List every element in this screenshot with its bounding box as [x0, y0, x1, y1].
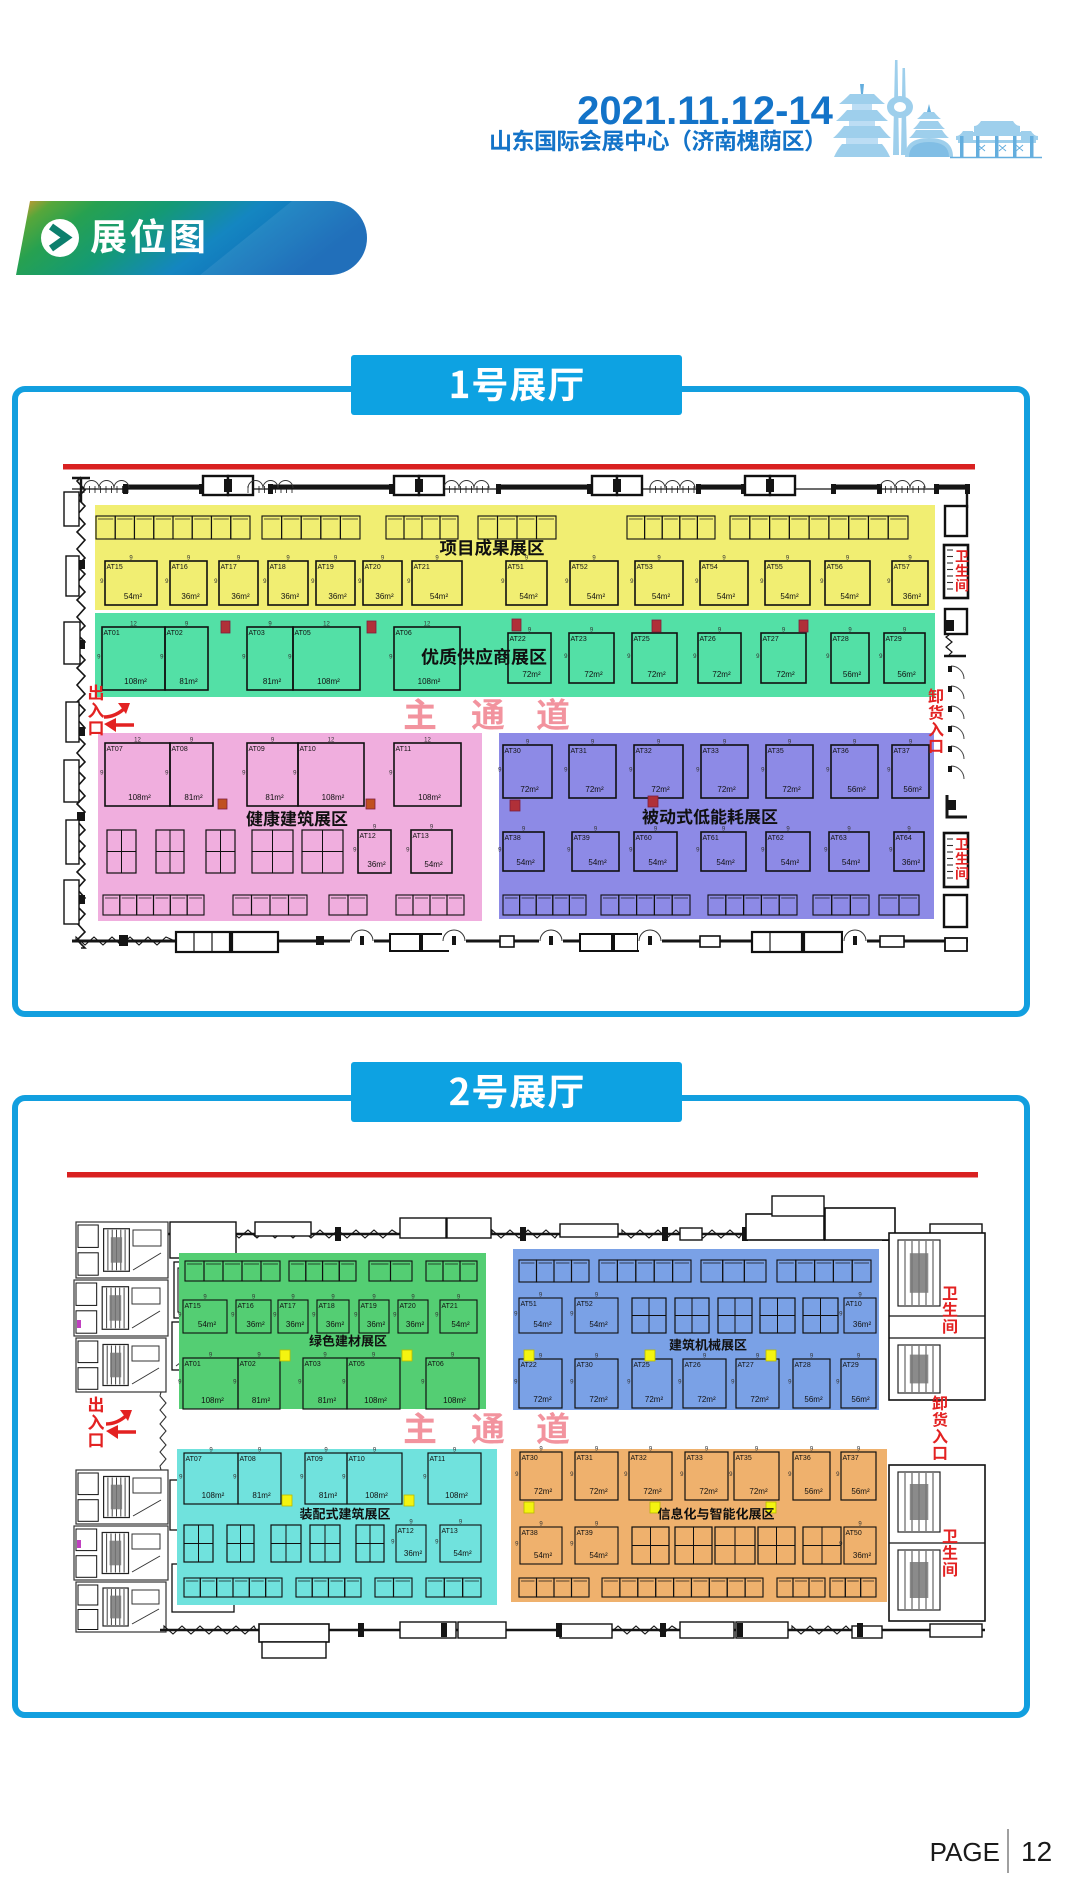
svg-text:54m²: 54m² [533, 1320, 552, 1329]
svg-text:AT29: AT29 [886, 636, 902, 643]
svg-text:54m²: 54m² [781, 858, 800, 867]
svg-text:108m²: 108m² [128, 793, 151, 802]
svg-text:AT11: AT11 [430, 1456, 446, 1463]
svg-text:AT19: AT19 [318, 564, 334, 571]
svg-text:AT36: AT36 [795, 1455, 811, 1462]
svg-text:72m²: 72m² [749, 1487, 768, 1496]
svg-text:72m²: 72m² [520, 785, 539, 794]
svg-text:AT62: AT62 [768, 835, 784, 842]
svg-text:AT25: AT25 [634, 1362, 650, 1369]
svg-text:54m²: 54m² [589, 1551, 608, 1560]
svg-text:AT08: AT08 [172, 746, 188, 753]
svg-text:AT13: AT13 [413, 833, 429, 840]
svg-text:AT35: AT35 [736, 1455, 752, 1462]
svg-text:72m²: 72m² [782, 785, 801, 794]
svg-text:36m²: 36m² [367, 1320, 386, 1329]
svg-text:AT05: AT05 [295, 630, 311, 637]
svg-text:108m²: 108m² [322, 793, 345, 802]
svg-text:AT05: AT05 [349, 1361, 365, 1368]
svg-text:36m²: 36m² [902, 858, 921, 867]
svg-text:AT23: AT23 [571, 636, 587, 643]
svg-text:54m²: 54m² [842, 858, 861, 867]
svg-text:56m²: 56m² [897, 670, 916, 679]
svg-text:AT60: AT60 [636, 835, 652, 842]
svg-text:AT02: AT02 [240, 1361, 256, 1368]
svg-text:AT57: AT57 [894, 564, 910, 571]
svg-text:PAGE: PAGE [930, 1837, 1000, 1867]
svg-text:AT17: AT17 [221, 564, 237, 571]
svg-text:AT10: AT10 [300, 746, 316, 753]
svg-text:AT33: AT33 [703, 748, 719, 755]
svg-text:AT18: AT18 [319, 1303, 335, 1310]
svg-text:AT08: AT08 [240, 1456, 256, 1463]
svg-text:AT52: AT52 [577, 1301, 593, 1308]
svg-text:108m²: 108m² [365, 1491, 388, 1500]
svg-text:54m²: 54m² [780, 592, 799, 601]
svg-text:AT17: AT17 [280, 1303, 296, 1310]
svg-text:AT39: AT39 [574, 835, 590, 842]
svg-text:AT26: AT26 [700, 636, 716, 643]
svg-text:56m²: 56m² [851, 1487, 870, 1496]
svg-text:AT09: AT09 [307, 1456, 323, 1463]
svg-text:72m²: 72m² [651, 785, 670, 794]
svg-text:AT29: AT29 [843, 1362, 859, 1369]
svg-text:AT02: AT02 [167, 630, 183, 637]
svg-text:AT22: AT22 [510, 636, 526, 643]
svg-text:AT56: AT56 [827, 564, 843, 571]
svg-text:36m²: 36m² [246, 1320, 265, 1329]
svg-text:AT28: AT28 [795, 1362, 811, 1369]
svg-text:81m²: 81m² [184, 793, 203, 802]
svg-text:72m²: 72m² [533, 1395, 552, 1404]
svg-text:AT36: AT36 [833, 748, 849, 755]
svg-text:12: 12 [424, 622, 431, 628]
svg-text:54m²: 54m² [588, 858, 607, 867]
svg-text:72m²: 72m² [534, 1487, 553, 1496]
svg-text:56m²: 56m² [804, 1487, 823, 1496]
svg-text:54m²: 54m² [124, 592, 143, 601]
svg-text:54m²: 54m² [717, 592, 736, 601]
svg-text:108m²: 108m² [418, 677, 441, 686]
svg-text:12: 12 [130, 622, 137, 628]
svg-text:56m²: 56m² [804, 1395, 823, 1404]
svg-text:72m²: 72m² [645, 1395, 664, 1404]
svg-text:36m²: 36m² [326, 1320, 345, 1329]
svg-text:AT37: AT37 [843, 1455, 859, 1462]
svg-text:81m²: 81m² [318, 1396, 337, 1405]
svg-text:AT11: AT11 [396, 746, 412, 753]
svg-text:81m²: 81m² [252, 1396, 271, 1405]
svg-text:81m²: 81m² [319, 1491, 338, 1500]
svg-text:AT12: AT12 [360, 833, 376, 840]
svg-text:72m²: 72m² [647, 670, 666, 679]
svg-text:36m²: 36m² [181, 592, 200, 601]
svg-text:AT16: AT16 [172, 564, 188, 571]
svg-text:56m²: 56m² [903, 785, 922, 794]
svg-text:AT03: AT03 [305, 1361, 321, 1368]
svg-text:108m²: 108m² [124, 677, 147, 686]
svg-text:AT30: AT30 [505, 748, 521, 755]
svg-text:12: 12 [134, 738, 141, 744]
svg-text:AT13: AT13 [442, 1528, 458, 1535]
svg-text:AT15: AT15 [185, 1303, 201, 1310]
svg-text:54m²: 54m² [534, 1551, 553, 1560]
svg-text:54m²: 54m² [648, 858, 667, 867]
svg-text:12: 12 [1021, 1836, 1052, 1867]
svg-text:AT09: AT09 [249, 746, 265, 753]
svg-text:36m²: 36m² [281, 592, 300, 601]
svg-text:36m²: 36m² [367, 860, 386, 869]
svg-text:AT27: AT27 [763, 636, 779, 643]
svg-text:AT50: AT50 [846, 1530, 862, 1537]
svg-text:56m²: 56m² [851, 1395, 870, 1404]
svg-text:54m²: 54m² [519, 592, 538, 601]
svg-text:AT19: AT19 [361, 1303, 377, 1310]
svg-text:108m²: 108m² [364, 1396, 387, 1405]
svg-text:AT10: AT10 [349, 1456, 365, 1463]
svg-text:AT38: AT38 [522, 1530, 538, 1537]
svg-text:54m²: 54m² [840, 592, 859, 601]
svg-text:AT22: AT22 [521, 1362, 537, 1369]
svg-text:AT39: AT39 [577, 1530, 593, 1537]
svg-text:54m²: 54m² [516, 858, 535, 867]
svg-text:54m²: 54m² [424, 860, 443, 869]
svg-text:72m²: 72m² [522, 670, 541, 679]
svg-text:54m²: 54m² [652, 592, 671, 601]
svg-text:108m²: 108m² [418, 793, 441, 802]
svg-text:72m²: 72m² [697, 1395, 716, 1404]
svg-text:AT27: AT27 [738, 1362, 754, 1369]
svg-text:54m²: 54m² [430, 592, 449, 601]
svg-text:AT30: AT30 [522, 1455, 538, 1462]
svg-text:72m²: 72m² [584, 670, 603, 679]
svg-text:54m²: 54m² [716, 858, 735, 867]
svg-text:AT20: AT20 [400, 1303, 416, 1310]
svg-text:81m²: 81m² [263, 677, 282, 686]
svg-text:36m²: 36m² [406, 1320, 425, 1329]
svg-text:72m²: 72m² [589, 1487, 608, 1496]
svg-text:72m²: 72m² [589, 1395, 608, 1404]
svg-text:AT03: AT03 [249, 630, 265, 637]
svg-text:81m²: 81m² [252, 1491, 271, 1500]
svg-text:AT28: AT28 [833, 636, 849, 643]
svg-text:AT01: AT01 [185, 1361, 201, 1368]
svg-text:AT30: AT30 [577, 1362, 593, 1369]
svg-text:AT07: AT07 [107, 746, 123, 753]
svg-text:AT38: AT38 [505, 835, 521, 842]
svg-text:AT51: AT51 [508, 564, 524, 571]
svg-text:AT63: AT63 [831, 835, 847, 842]
svg-text:AT35: AT35 [768, 748, 784, 755]
svg-text:AT26: AT26 [685, 1362, 701, 1369]
svg-text:108m²: 108m² [443, 1396, 466, 1405]
svg-text:AT21: AT21 [442, 1303, 458, 1310]
svg-text:108m²: 108m² [317, 677, 340, 686]
svg-text:72m²: 72m² [712, 670, 731, 679]
svg-text:AT61: AT61 [703, 835, 719, 842]
svg-text:36m²: 36m² [853, 1551, 872, 1560]
svg-text:AT51: AT51 [521, 1301, 537, 1308]
svg-text:12: 12 [424, 738, 431, 744]
svg-text:72m²: 72m² [699, 1487, 718, 1496]
svg-text:72m²: 72m² [750, 1395, 769, 1404]
svg-text:36m²: 36m² [231, 592, 250, 601]
svg-text:AT16: AT16 [238, 1303, 254, 1310]
svg-text:AT37: AT37 [894, 748, 910, 755]
svg-text:56m²: 56m² [843, 670, 862, 679]
svg-text:108m²: 108m² [445, 1491, 468, 1500]
svg-text:AT64: AT64 [896, 835, 912, 842]
svg-text:81m²: 81m² [265, 793, 284, 802]
svg-text:54m²: 54m² [587, 592, 606, 601]
svg-text:36m²: 36m² [853, 1320, 872, 1329]
svg-text:AT15: AT15 [107, 564, 123, 571]
svg-text:AT07: AT07 [186, 1456, 202, 1463]
svg-text:72m²: 72m² [643, 1487, 662, 1496]
svg-text:AT21: AT21 [414, 564, 430, 571]
svg-text:AT33: AT33 [687, 1455, 703, 1462]
svg-text:36m²: 36m² [328, 592, 347, 601]
svg-text:72m²: 72m² [585, 785, 604, 794]
svg-text:12: 12 [328, 738, 335, 744]
svg-text:72m²: 72m² [776, 670, 795, 679]
svg-text:36m²: 36m² [404, 1549, 423, 1558]
svg-text:36m²: 36m² [375, 592, 394, 601]
svg-text:AT06: AT06 [396, 630, 412, 637]
svg-text:56m²: 56m² [847, 785, 866, 794]
svg-text:AT55: AT55 [767, 564, 783, 571]
svg-text:AT20: AT20 [365, 564, 381, 571]
svg-text:AT12: AT12 [398, 1528, 414, 1535]
svg-text:54m²: 54m² [451, 1320, 470, 1329]
svg-text:81m²: 81m² [179, 677, 198, 686]
svg-text:AT06: AT06 [428, 1361, 444, 1368]
svg-text:54m²: 54m² [198, 1320, 217, 1329]
svg-text:AT31: AT31 [571, 748, 587, 755]
svg-text:AT25: AT25 [634, 636, 650, 643]
svg-text:36m²: 36m² [903, 592, 922, 601]
svg-text:36m²: 36m² [286, 1320, 305, 1329]
svg-text:AT32: AT32 [636, 748, 652, 755]
svg-text:AT31: AT31 [577, 1455, 593, 1462]
svg-text:AT52: AT52 [572, 564, 588, 571]
svg-text:54m²: 54m² [453, 1549, 472, 1558]
svg-text:AT01: AT01 [104, 630, 120, 637]
svg-text:AT18: AT18 [270, 564, 286, 571]
svg-text:108m²: 108m² [201, 1396, 224, 1405]
svg-text:72m²: 72m² [717, 785, 736, 794]
svg-text:AT32: AT32 [631, 1455, 647, 1462]
svg-text:108m²: 108m² [202, 1491, 225, 1500]
svg-text:2021.11.12-14: 2021.11.12-14 [577, 89, 834, 133]
svg-text:AT54: AT54 [702, 564, 718, 571]
svg-text:AT10: AT10 [846, 1301, 862, 1308]
svg-text:AT53: AT53 [637, 564, 653, 571]
svg-text:12: 12 [323, 622, 330, 628]
svg-text:54m²: 54m² [589, 1320, 608, 1329]
